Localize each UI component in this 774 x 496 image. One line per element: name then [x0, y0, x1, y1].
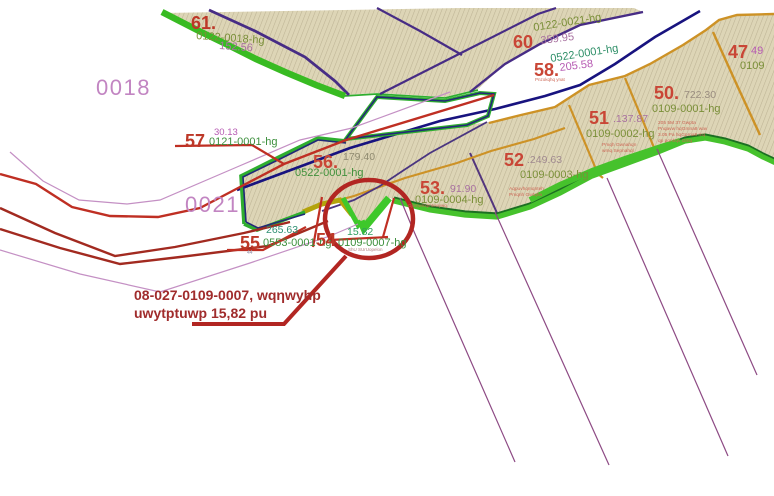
svg-text:47: 47 — [728, 42, 748, 62]
svg-text:49: 49 — [751, 45, 763, 57]
svg-text:44: 44 — [247, 250, 253, 256]
svg-text:0109-0003-hg: 0109-0003-hg — [520, 169, 589, 181]
svg-text:50.: 50. — [654, 83, 679, 103]
svg-text:08-027-0109-0007, wqηwyhp: 08-027-0109-0007, wqηwyhp — [134, 287, 321, 303]
svg-text:Aqpuvhqmqnteh: Aqpuvhqmqnteh — [509, 186, 544, 192]
svg-text:Gjnιηwmqmtuwywq: Gjnιηwmqmtuwywq — [408, 203, 447, 208]
svg-text:722.30: 722.30 — [684, 89, 716, 101]
svg-text:0109-0001-hg: 0109-0001-hg — [652, 103, 721, 115]
svg-text:52: 52 — [504, 150, 524, 170]
svg-text:57: 57 — [185, 131, 205, 151]
svg-text:Pnzokqhq ynat: Pnzokqhq ynat — [535, 77, 566, 82]
svg-text:0018: 0018 — [96, 75, 151, 100]
svg-text:uwytptuwp 15,82 pu: uwytptuwp 15,82 pu — [134, 305, 267, 321]
svg-text:60: 60 — [513, 32, 533, 52]
svg-text:3.05 Pa hqGprna8 mq: 3.05 Pa hqGprna8 mq — [658, 132, 706, 138]
svg-text:qp ponhqv Gmq: qp ponhqv Gmq — [658, 138, 692, 144]
svg-text:ShU SUrUopelon: ShU SUrUopelon — [348, 247, 383, 252]
svg-text:152.56: 152.56 — [219, 40, 253, 54]
svg-text:0121-0001-hg: 0121-0001-hg — [209, 136, 278, 148]
svg-text:Pnqavw hqGmna8 wav: Pnqavw hqGmna8 wav — [658, 126, 708, 132]
svg-text:Pmqnh Gwtqha: Pmqnh Gwtqha — [509, 192, 542, 198]
svg-text:0522-0001-hg: 0522-0001-hg — [295, 167, 364, 179]
svg-text:179.40: 179.40 — [343, 151, 375, 163]
svg-text:Pmqh Gwnahqn: Pmqh Gwnahqn — [602, 142, 637, 148]
svg-text:265.63: 265.63 — [266, 224, 298, 236]
svg-text:205 5M 37 Gwpta: 205 5M 37 Gwpta — [658, 120, 696, 126]
svg-text:0021: 0021 — [185, 192, 240, 217]
svg-text:0109-0002-hg: 0109-0002-hg — [586, 128, 655, 140]
svg-text:.137.87: .137.87 — [613, 113, 648, 125]
svg-text:0109: 0109 — [740, 60, 764, 72]
svg-text:54: 54 — [316, 230, 336, 250]
svg-text:51: 51 — [589, 108, 609, 128]
svg-text:.249.63: .249.63 — [527, 154, 562, 166]
svg-text:wmq Sepnahql: wmq Sepnahql — [602, 148, 634, 154]
